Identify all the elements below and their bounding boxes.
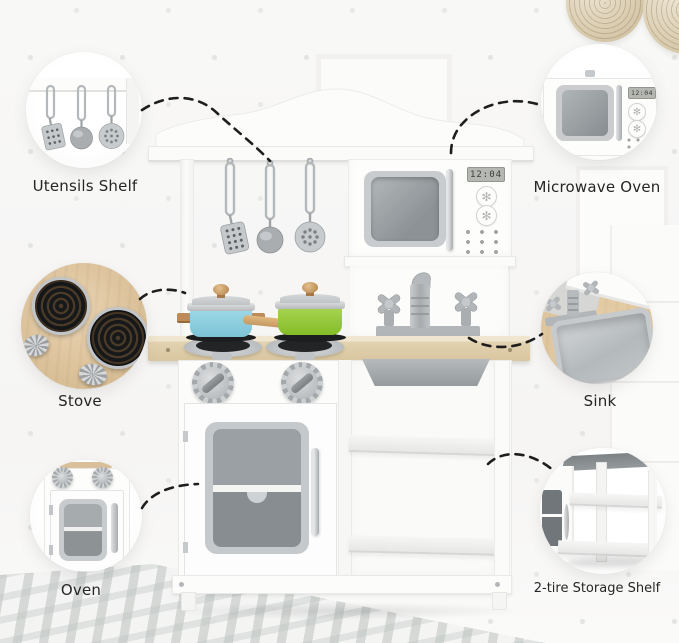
oven-window-frame <box>205 422 309 554</box>
inset-microwave-dial-icon: ✻ <box>628 103 646 121</box>
crown-top <box>152 78 528 148</box>
inset-oven-knob-face <box>97 472 108 483</box>
inset-ladle <box>71 86 93 149</box>
inset-door-rack-line <box>542 514 562 517</box>
oven-rack-shelf <box>213 485 301 492</box>
microwave-window-frame <box>364 171 446 247</box>
stove-dial <box>281 362 323 404</box>
microwave-handle <box>446 169 453 251</box>
oven-hinge <box>183 431 188 442</box>
callout-utensils-shelf <box>26 52 142 168</box>
inset-oven-window-frame <box>59 499 107 561</box>
inset-oven-hinge <box>49 545 53 555</box>
inset-oven-handle <box>111 503 118 553</box>
inset-oven-hinge <box>49 505 53 515</box>
hanging-utensils <box>205 158 335 270</box>
base-screw <box>179 582 184 587</box>
inset-dark-countertop <box>561 452 652 471</box>
faucet-cross-handle <box>377 293 402 326</box>
inset-microwave-clock: 12:04 <box>628 87 656 99</box>
microwave-dial-icon: ✻ <box>476 205 497 226</box>
flower-glyph: ✻ <box>633 107 641 118</box>
pan-lid-knob <box>302 282 318 293</box>
flower-glyph: ✻ <box>481 190 491 204</box>
callout-oven <box>30 460 142 572</box>
green-pan <box>240 282 350 346</box>
inset-door-window-sliver <box>542 490 562 546</box>
callout-label-utensils-shelf: Utensils Shelf <box>33 177 138 195</box>
inset-microwave-window <box>562 90 608 136</box>
kitchen-leg <box>181 592 196 611</box>
microwave-window <box>371 177 439 241</box>
microwave-button-grid <box>464 228 506 254</box>
pan-body <box>278 307 342 335</box>
counter-screw <box>508 348 512 352</box>
kitchen-floor-shadow <box>165 602 525 620</box>
pot-lid-knob <box>213 284 229 295</box>
oven-door-handle <box>311 448 319 536</box>
callout-label-oven: Oven <box>61 581 101 599</box>
kitchen-leg <box>492 592 507 610</box>
inset-microwave-dial-icon: ✻ <box>628 120 646 138</box>
sink-faucet <box>374 266 484 340</box>
stove-dial <box>192 362 234 404</box>
oven-tab <box>247 492 267 503</box>
inset-oven-rack <box>64 527 102 531</box>
inset-microwave-top-knob <box>585 70 595 77</box>
oven-door <box>184 403 337 578</box>
callout-microwave-oven: 12:04 ✻ ✻ <box>541 44 657 160</box>
pot-handle-left <box>177 313 191 323</box>
hanging-spatula <box>218 159 249 255</box>
inset-microwave-handle <box>616 85 622 141</box>
inset-spatula <box>40 86 66 150</box>
microwave-dial-icon: ✻ <box>476 186 497 207</box>
inset-microwave-clock-text: 12:04 <box>631 89 653 97</box>
inset-oven-knob-face <box>57 472 68 483</box>
callout-label-storage-shelf: 2-tire Storage Shelf <box>534 581 661 596</box>
base-screw <box>495 582 500 587</box>
inset-coil-burner <box>87 307 147 369</box>
callout-sink <box>541 272 653 384</box>
inset-shelf-shadow <box>566 558 650 567</box>
inset-coil-burner <box>32 277 90 335</box>
hanging-ladle <box>257 161 283 253</box>
oven-hinge <box>183 542 188 553</box>
inset-oven-window <box>64 504 102 556</box>
counter-screw <box>166 348 170 352</box>
inset-hanging-utensils <box>32 84 132 164</box>
callout-label-sink: Sink <box>584 392 617 410</box>
microwave-clock-text: 12:04 <box>470 170 502 180</box>
base-frame <box>172 575 512 594</box>
flower-glyph: ✻ <box>481 209 491 223</box>
inset-microwave-body: 12:04 ✻ ✻ <box>543 78 657 156</box>
hanging-skimmer <box>295 159 325 252</box>
callout-label-stove: Stove <box>58 392 102 410</box>
inset-cross-handle <box>581 279 600 297</box>
inset-microwave-button-grid <box>626 137 654 153</box>
inset-microwave-window-frame <box>556 85 614 141</box>
callout-label-microwave-oven: Microwave Oven <box>534 178 661 196</box>
microwave: 12:04 ✻ ✻ <box>348 159 512 261</box>
inset-door-handle <box>564 504 569 540</box>
faucet-cross-handle <box>454 291 479 326</box>
inset-bottom-shelf <box>558 540 662 558</box>
bottom-storage-shelf <box>349 535 497 556</box>
inset-cross-handle <box>543 295 562 313</box>
play-kitchen-feature-diagram: 12:04 ✻ ✻ <box>0 0 679 643</box>
sink-tub <box>362 359 490 386</box>
callout-stove <box>21 263 147 389</box>
inset-oven-knob <box>52 467 73 488</box>
right-leg-post <box>494 360 510 579</box>
inset-oven-knob <box>92 467 113 488</box>
callout-storage-shelf <box>540 448 666 574</box>
flower-glyph: ✻ <box>633 124 641 135</box>
inset-right-post <box>648 470 657 554</box>
microwave-clock: 12:04 <box>467 167 505 182</box>
inset-skimmer <box>99 86 124 149</box>
oven-window <box>213 429 301 547</box>
inset-oven-door <box>50 490 124 572</box>
